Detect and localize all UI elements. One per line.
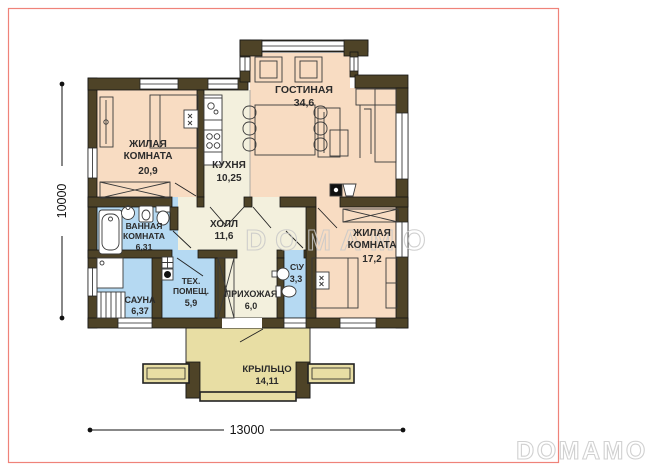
wall-mid-d (280, 197, 316, 207)
svg-text:КУХНЯ: КУХНЯ (212, 160, 246, 171)
sauna-bench-icon (97, 292, 125, 318)
porch-planter-right (308, 364, 354, 383)
svg-text:КОМНАТА: КОМНАТА (348, 240, 397, 251)
svg-text:КОМНАТА: КОМНАТА (123, 231, 165, 241)
wall-mid-b (197, 197, 204, 207)
porch-step (200, 392, 296, 401)
window-bottom-bedroom2 (340, 318, 376, 328)
bathtub-icon (99, 210, 122, 254)
window-top-bedroom1 (140, 79, 178, 89)
window-right-living (396, 113, 408, 179)
area-kitchen: 10,25 (216, 173, 241, 184)
wall-low-b (198, 250, 237, 258)
svg-text:ГОСТИНАЯ: ГОСТИНАЯ (275, 84, 333, 96)
height-dimension-label: 10000 (55, 184, 69, 219)
wall-bay-corner-left (240, 40, 262, 56)
shower-tray-icon (97, 258, 123, 288)
window-bay-right (350, 57, 358, 71)
window-top-kitchen (208, 79, 238, 89)
width-dimension-label: 13000 (230, 423, 265, 437)
svg-text:ПОМЕЩ.: ПОМЕЩ. (173, 286, 209, 296)
window-bay-left (240, 57, 250, 71)
window-bottom-wc (284, 318, 306, 328)
area-bedroom2: 17,2 (362, 254, 382, 265)
area-wc: 3,3 (290, 274, 303, 284)
floor-plan-canvas: DOMAMO ЖИЛАЯ КОМНАТА 20,9 КУХНЯ 10,25 ГО… (0, 0, 665, 470)
area-bathroom: 6,31 (136, 242, 153, 252)
wc-toilet-icon (276, 286, 296, 297)
porch-planter-left (143, 364, 189, 383)
area-bedroom1: 20,9 (138, 166, 158, 177)
wall-step-top-right (355, 75, 408, 88)
floor-plan-svg: DOMAMO ЖИЛАЯ КОМНАТА 20,9 КУХНЯ 10,25 ГО… (0, 0, 665, 470)
svg-text:КОМНАТА: КОМНАТА (124, 151, 173, 162)
domamo-logo: DOMAMO (516, 437, 648, 465)
nightstand-icon-2 (316, 272, 329, 289)
wall-bathroom-right (170, 207, 178, 230)
wall-bay-right-a (350, 52, 358, 57)
washbasin-icon (139, 206, 153, 222)
sauna-fixtures (97, 258, 125, 318)
porch-floor (186, 328, 310, 398)
kitchen-sink-icon (204, 98, 222, 120)
svg-text:ВАННАЯ: ВАННАЯ (126, 221, 163, 231)
window-left-sauna (88, 268, 97, 296)
stove-icon (204, 130, 222, 152)
svg-text:ХОЛЛ: ХОЛЛ (210, 219, 238, 230)
svg-text:ЖИЛАЯ: ЖИЛАЯ (128, 139, 167, 150)
front-door-opening (222, 318, 262, 328)
area-living: 34,6 (294, 97, 315, 109)
kitchen-furniture (204, 95, 222, 165)
svg-text:С\У: С\У (290, 262, 305, 272)
svg-text:ТЕХ.: ТЕХ. (182, 276, 201, 286)
svg-text:ПРИХОЖАЯ: ПРИХОЖАЯ (225, 289, 278, 299)
wall-sauna-tech (152, 258, 162, 318)
wall-mid-c (244, 197, 252, 207)
window-bay-top (262, 41, 344, 51)
window-bottom-sauna (118, 318, 152, 328)
wall-mid-a (88, 197, 172, 207)
area-tech: 5,9 (185, 298, 198, 308)
area-porch: 14,11 (255, 376, 279, 387)
svg-text:ЖИЛАЯ: ЖИЛАЯ (352, 228, 391, 239)
room-living-floor (250, 53, 396, 197)
wall-mid-e (340, 197, 408, 207)
wall-wc-bedroom2 (306, 207, 316, 318)
area-hall: 11,6 (215, 231, 234, 242)
dimension-vertical: 10000 (52, 82, 74, 321)
window-left-bedroom1 (88, 148, 97, 178)
nightstand-icon (184, 110, 198, 128)
svg-text:КРЫЛЬЦО: КРЫЛЬЦО (242, 364, 291, 375)
area-sauna: 6,37 (131, 306, 149, 316)
area-entry: 6,0 (245, 301, 258, 311)
center-watermark: DOMAMO (245, 225, 434, 257)
dimension-horizontal: 13000 (88, 421, 406, 437)
svg-text:САУНА: САУНА (124, 295, 156, 305)
